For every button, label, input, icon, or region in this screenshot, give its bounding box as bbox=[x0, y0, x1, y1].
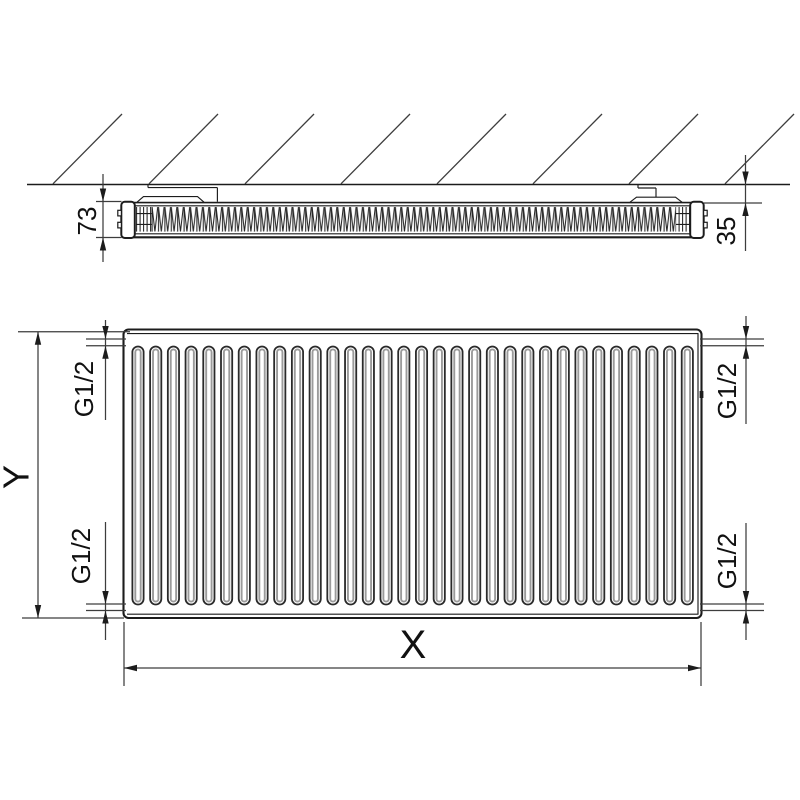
flute bbox=[132, 347, 143, 605]
flute bbox=[256, 347, 267, 605]
flute bbox=[168, 347, 179, 605]
depth-dimension-label: 73 bbox=[72, 207, 102, 236]
connection-stub-top-right bbox=[700, 339, 764, 346]
front-panel-flutes bbox=[132, 347, 693, 605]
side-clip bbox=[700, 391, 704, 398]
radiator-front-view bbox=[124, 330, 704, 619]
flute bbox=[451, 347, 462, 605]
flute bbox=[611, 347, 622, 605]
end-cap-tab bbox=[704, 222, 708, 228]
flute bbox=[629, 347, 640, 605]
connection-thread-label: G1/2 bbox=[712, 363, 742, 419]
flute bbox=[558, 347, 569, 605]
flute bbox=[292, 347, 303, 605]
dimension-wall-distance: 35 bbox=[704, 155, 762, 251]
flute bbox=[593, 347, 604, 605]
hatch-line bbox=[725, 114, 794, 184]
flute bbox=[380, 347, 391, 605]
hatch-line bbox=[341, 114, 410, 184]
flute bbox=[150, 347, 161, 605]
dimension-height: Y bbox=[0, 332, 130, 618]
hatch-line bbox=[437, 114, 506, 184]
connection-stub-bottom-right bbox=[700, 604, 764, 611]
flute bbox=[221, 347, 232, 605]
hatch-line bbox=[245, 114, 314, 184]
connection-thread-label: G1/2 bbox=[66, 528, 96, 584]
flute bbox=[345, 347, 356, 605]
dimension-connection-bottom-right: G1/2 bbox=[712, 523, 749, 640]
bracket-clamp bbox=[137, 197, 204, 203]
height-dimension-label: Y bbox=[0, 465, 37, 489]
bracket-clamp bbox=[630, 197, 682, 202]
hatch-line bbox=[149, 114, 218, 184]
dimension-connection-top-right: G1/2 bbox=[712, 316, 749, 424]
flute bbox=[664, 347, 675, 605]
convector-fins bbox=[152, 207, 676, 232]
flute bbox=[540, 347, 551, 605]
flute bbox=[434, 347, 445, 605]
radiator-technical-drawing-page: 73 35 Y X G1/2 bbox=[0, 0, 800, 800]
hatch-line bbox=[533, 114, 602, 184]
dimension-connection-bottom-left: G1/2 bbox=[66, 522, 109, 640]
flute bbox=[682, 347, 693, 605]
wall-hatching bbox=[53, 114, 794, 184]
flute bbox=[505, 347, 516, 605]
wall-distance-dimension-label: 35 bbox=[711, 217, 741, 246]
side-view-end-cap-left bbox=[121, 202, 135, 238]
end-cap-tab bbox=[118, 222, 122, 228]
flute bbox=[398, 347, 409, 605]
connection-thread-label: G1/2 bbox=[712, 533, 742, 589]
end-grille-right bbox=[676, 207, 692, 232]
flute bbox=[274, 347, 285, 605]
flute bbox=[575, 347, 586, 605]
flute bbox=[363, 347, 374, 605]
width-dimension-label: X bbox=[400, 623, 427, 667]
flute bbox=[186, 347, 197, 605]
end-grille-left bbox=[136, 207, 152, 232]
flute bbox=[416, 347, 427, 605]
mounting-bracket-right bbox=[630, 185, 682, 203]
hatch-line bbox=[53, 114, 122, 184]
technical-drawing: 73 35 Y X G1/2 bbox=[0, 0, 800, 800]
end-cap-tab bbox=[118, 210, 122, 216]
flute bbox=[310, 347, 321, 605]
mounting-bracket-left bbox=[137, 185, 217, 203]
side-view-end-cap-right bbox=[690, 202, 704, 238]
dimension-width: X bbox=[124, 622, 701, 686]
flute bbox=[203, 347, 214, 605]
flute bbox=[469, 347, 480, 605]
flute bbox=[239, 347, 250, 605]
flute bbox=[487, 347, 498, 605]
flute bbox=[646, 347, 657, 605]
end-cap-tab bbox=[704, 210, 708, 216]
flute bbox=[522, 347, 533, 605]
dimension-connection-top-left: G1/2 bbox=[69, 320, 109, 420]
hatch-line bbox=[629, 114, 698, 184]
flute bbox=[327, 347, 338, 605]
dimension-depth: 73 bbox=[72, 174, 122, 262]
radiator-side-view bbox=[118, 202, 707, 238]
connection-thread-label: G1/2 bbox=[69, 361, 99, 417]
